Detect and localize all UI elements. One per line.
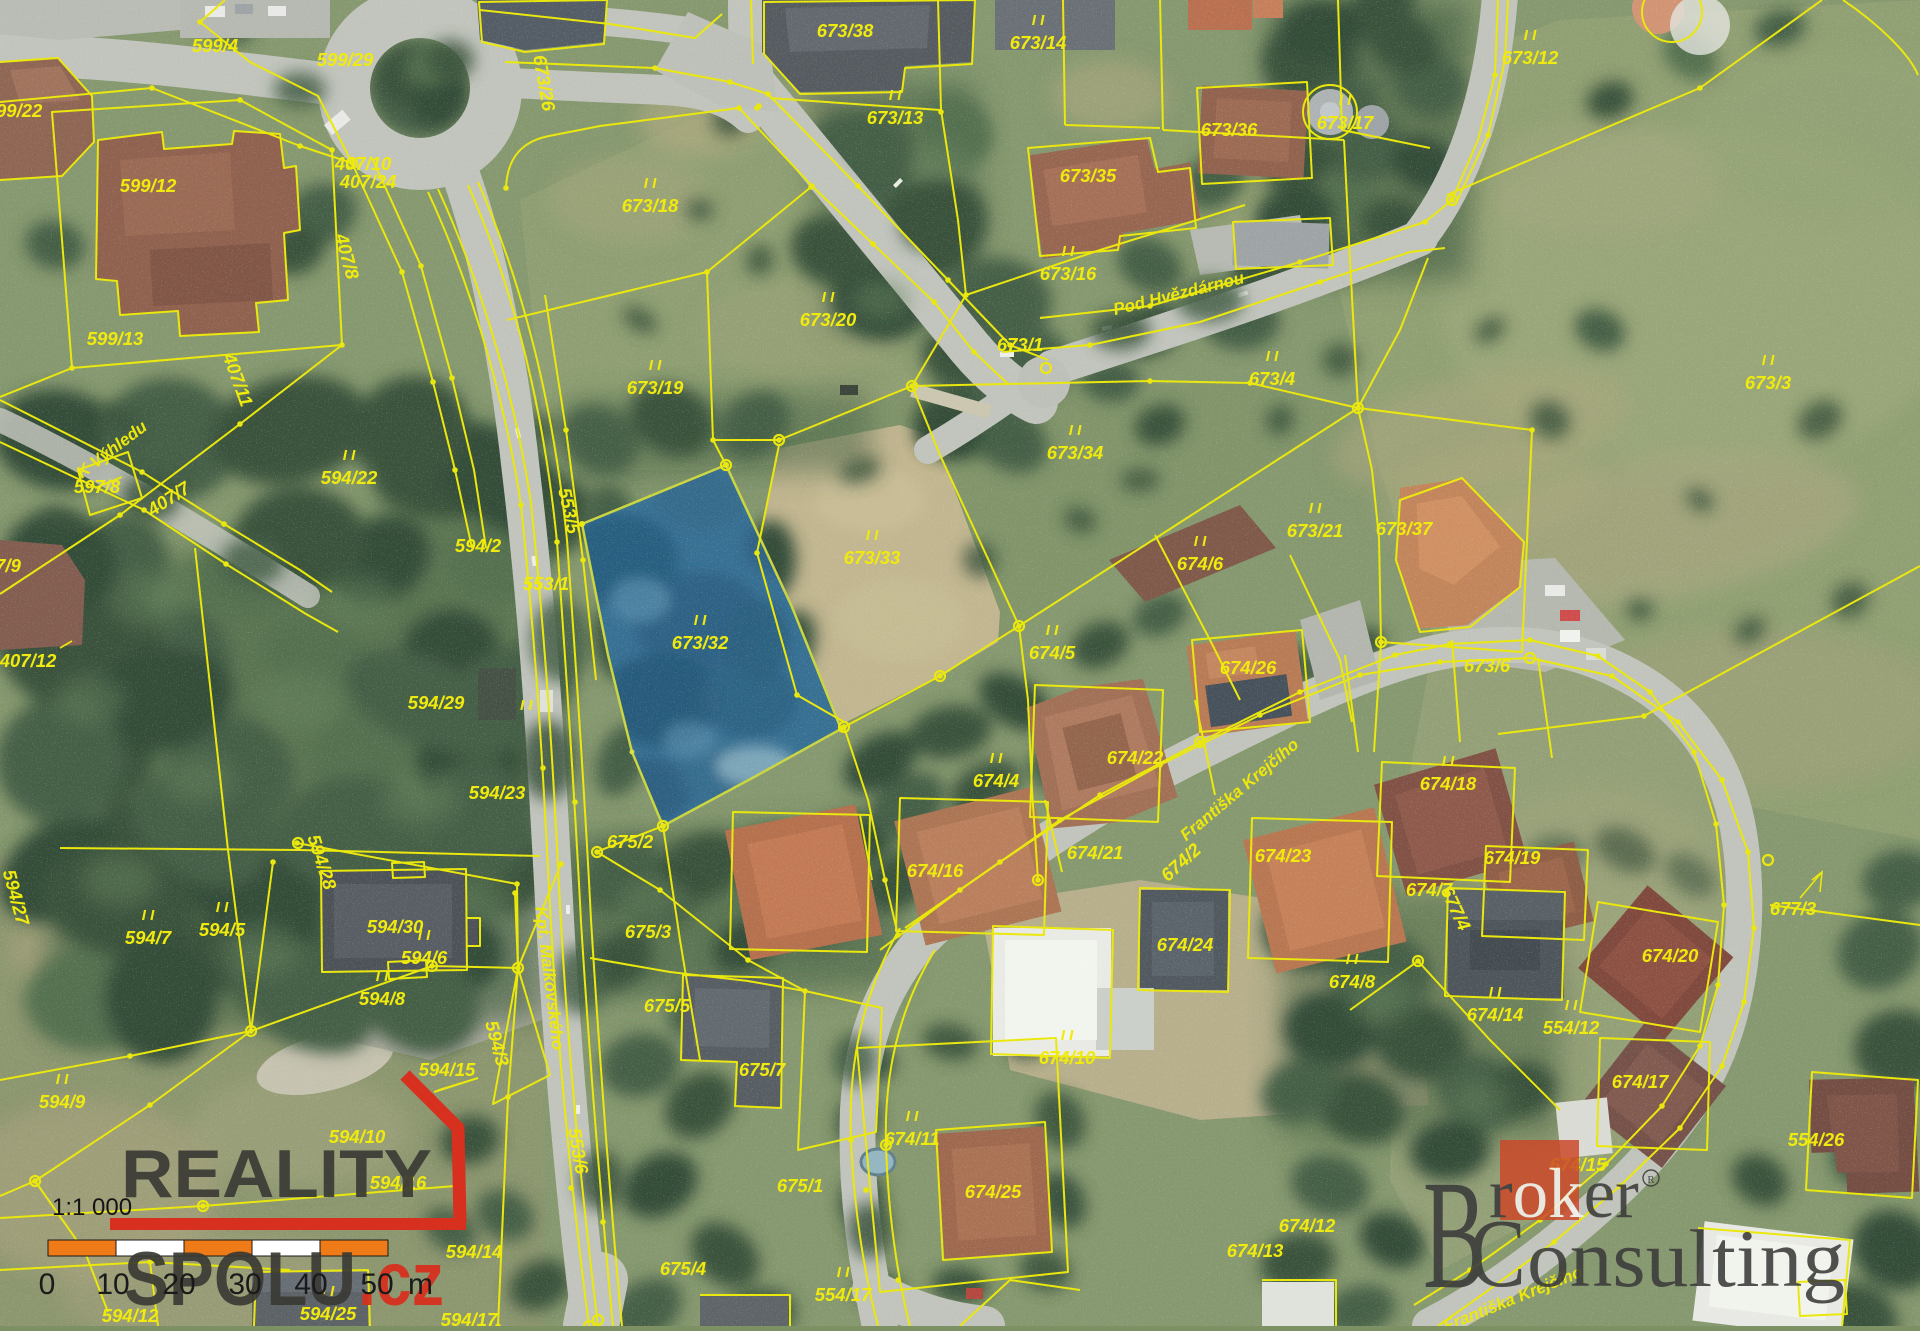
svg-text:C: C bbox=[1469, 1200, 1526, 1307]
svg-text:0: 0 bbox=[39, 1268, 56, 1301]
svg-text:REALITY: REALITY bbox=[121, 1136, 432, 1212]
svg-text:50: 50 bbox=[360, 1268, 393, 1301]
svg-text:40: 40 bbox=[294, 1268, 327, 1301]
svg-text:R: R bbox=[1647, 1174, 1655, 1186]
svg-text:m: m bbox=[408, 1268, 433, 1301]
svg-text:20: 20 bbox=[162, 1268, 195, 1301]
svg-text:30: 30 bbox=[228, 1268, 261, 1301]
svg-text:1:1 000: 1:1 000 bbox=[52, 1194, 132, 1221]
svg-text:10: 10 bbox=[96, 1268, 129, 1301]
svg-text:onsulting: onsulting bbox=[1527, 1213, 1845, 1304]
